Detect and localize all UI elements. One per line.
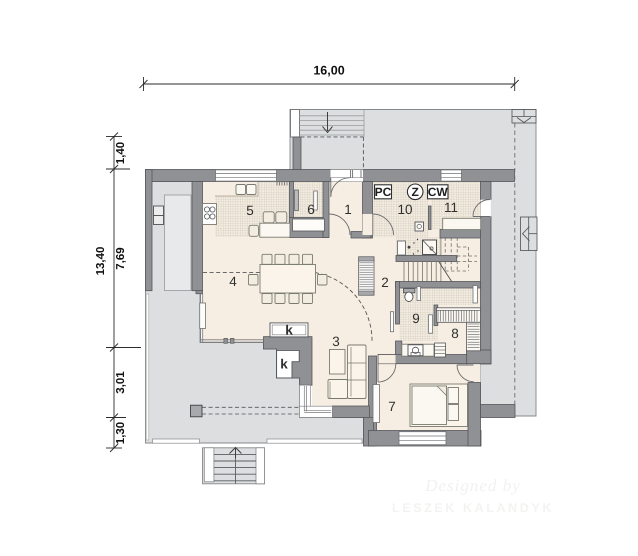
svg-text:3,01: 3,01 — [115, 371, 127, 394]
svg-text:Z: Z — [412, 185, 419, 199]
svg-text:Designed by: Designed by — [424, 476, 521, 495]
svg-text:k: k — [285, 323, 293, 338]
svg-text:LESZEK KALANDYK: LESZEK KALANDYK — [392, 501, 554, 515]
svg-text:16,00: 16,00 — [313, 64, 344, 78]
svg-text:2: 2 — [381, 275, 389, 290]
svg-text:13,40: 13,40 — [95, 247, 107, 276]
svg-text:11: 11 — [444, 200, 458, 215]
svg-text:1: 1 — [344, 202, 352, 217]
svg-text:5: 5 — [246, 203, 254, 218]
svg-text:k: k — [280, 357, 288, 372]
svg-text:1,30: 1,30 — [115, 422, 127, 444]
svg-text:6: 6 — [307, 202, 315, 217]
svg-text:PC: PC — [375, 185, 392, 199]
svg-text:10: 10 — [397, 202, 412, 217]
svg-text:8: 8 — [451, 326, 459, 341]
svg-text:9: 9 — [412, 311, 420, 326]
svg-text:CW: CW — [428, 185, 449, 199]
svg-text:1,40: 1,40 — [115, 142, 127, 164]
svg-text:3: 3 — [332, 334, 340, 349]
svg-text:4: 4 — [229, 274, 237, 289]
svg-text:7: 7 — [388, 399, 396, 414]
svg-text:7,69: 7,69 — [115, 247, 127, 269]
